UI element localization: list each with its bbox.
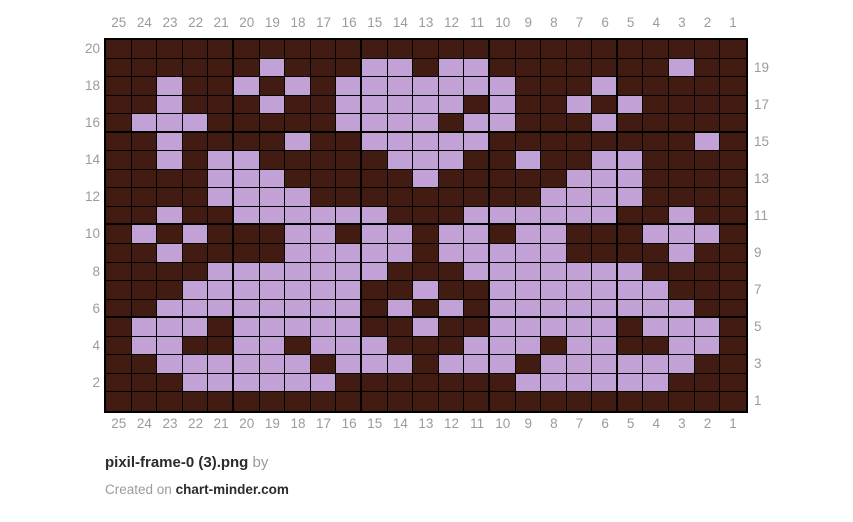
grid-cell[interactable] [208,225,234,244]
grid-cell[interactable] [132,96,158,115]
grid-cell[interactable] [388,355,414,374]
grid-cell[interactable] [464,318,490,337]
grid-cell[interactable] [720,59,746,78]
grid-cell[interactable] [516,96,542,115]
grid-cell[interactable] [388,170,414,189]
grid-cell[interactable] [516,59,542,78]
grid-cell[interactable] [362,151,388,170]
grid-cell[interactable] [618,374,644,393]
grid-cell[interactable] [695,133,721,152]
grid-cell[interactable] [439,225,465,244]
grid-cell[interactable] [720,188,746,207]
grid-cell[interactable] [157,281,183,300]
grid-cell[interactable] [311,281,337,300]
grid-cell[interactable] [439,263,465,282]
grid-cell[interactable] [132,40,158,59]
grid-cell[interactable] [336,188,362,207]
grid-cell[interactable] [183,40,209,59]
grid-cell[interactable] [439,281,465,300]
grid-cell[interactable] [541,300,567,319]
grid-cell[interactable] [362,281,388,300]
grid-cell[interactable] [464,337,490,356]
grid-cell[interactable] [234,225,260,244]
grid-cell[interactable] [643,244,669,263]
grid-cell[interactable] [413,170,439,189]
grid-cell[interactable] [439,133,465,152]
grid-cell[interactable] [260,225,286,244]
grid-cell[interactable] [157,244,183,263]
grid-cell[interactable] [720,225,746,244]
grid-cell[interactable] [106,188,132,207]
grid-cell[interactable] [106,318,132,337]
grid-cell[interactable] [464,263,490,282]
grid-cell[interactable] [336,374,362,393]
grid-cell[interactable] [157,96,183,115]
grid-cell[interactable] [720,318,746,337]
grid-cell[interactable] [618,96,644,115]
grid-cell[interactable] [336,59,362,78]
grid-cell[interactable] [413,77,439,96]
grid-cell[interactable] [234,263,260,282]
grid-cell[interactable] [106,244,132,263]
grid-cell[interactable] [592,96,618,115]
grid-cell[interactable] [362,300,388,319]
grid-cell[interactable] [132,170,158,189]
grid-cell[interactable] [132,318,158,337]
grid-cell[interactable] [720,300,746,319]
grid-cell[interactable] [413,337,439,356]
grid-cell[interactable] [132,133,158,152]
grid-cell[interactable] [285,188,311,207]
grid-cell[interactable] [132,59,158,78]
grid-cell[interactable] [183,337,209,356]
grid-cell[interactable] [695,374,721,393]
grid-cell[interactable] [413,225,439,244]
grid-cell[interactable] [413,263,439,282]
grid-cell[interactable] [567,374,593,393]
grid-cell[interactable] [464,114,490,133]
grid-cell[interactable] [567,281,593,300]
grid-cell[interactable] [388,318,414,337]
grid-cell[interactable] [439,392,465,411]
grid-cell[interactable] [413,355,439,374]
grid-cell[interactable] [260,133,286,152]
grid-cell[interactable] [388,374,414,393]
grid-cell[interactable] [618,337,644,356]
grid-cell[interactable] [208,40,234,59]
grid-cell[interactable] [285,170,311,189]
grid-cell[interactable] [516,188,542,207]
grid-cell[interactable] [157,300,183,319]
grid-cell[interactable] [336,40,362,59]
grid-cell[interactable] [464,281,490,300]
grid-cell[interactable] [464,151,490,170]
grid-cell[interactable] [285,281,311,300]
grid-cell[interactable] [208,244,234,263]
grid-cell[interactable] [669,188,695,207]
grid-cell[interactable] [567,114,593,133]
grid-cell[interactable] [567,244,593,263]
grid-cell[interactable] [260,244,286,263]
grid-cell[interactable] [132,77,158,96]
grid-cell[interactable] [490,188,516,207]
grid-cell[interactable] [208,188,234,207]
grid-cell[interactable] [413,207,439,226]
grid-cell[interactable] [490,281,516,300]
grid-cell[interactable] [208,318,234,337]
grid-cell[interactable] [413,151,439,170]
grid-cell[interactable] [669,392,695,411]
grid-cell[interactable] [208,281,234,300]
grid-cell[interactable] [157,188,183,207]
grid-cell[interactable] [157,170,183,189]
grid-cell[interactable] [567,355,593,374]
grid-cell[interactable] [413,40,439,59]
grid-cell[interactable] [260,300,286,319]
grid-cell[interactable] [285,77,311,96]
grid-cell[interactable] [695,207,721,226]
grid-cell[interactable] [157,151,183,170]
grid-cell[interactable] [157,225,183,244]
grid-cell[interactable] [157,374,183,393]
grid-cell[interactable] [183,59,209,78]
grid-cell[interactable] [439,77,465,96]
grid-cell[interactable] [285,374,311,393]
grid-cell[interactable] [592,244,618,263]
grid-cell[interactable] [132,374,158,393]
grid-cell[interactable] [132,337,158,356]
grid-cell[interactable] [413,59,439,78]
grid-cell[interactable] [311,96,337,115]
grid-cell[interactable] [464,40,490,59]
grid-cell[interactable] [208,170,234,189]
grid-cell[interactable] [592,355,618,374]
grid-cell[interactable] [362,77,388,96]
grid-cell[interactable] [311,318,337,337]
grid-cell[interactable] [362,355,388,374]
grid-cell[interactable] [720,207,746,226]
grid-cell[interactable] [260,77,286,96]
grid-cell[interactable] [388,114,414,133]
grid-cell[interactable] [669,133,695,152]
grid-cell[interactable] [234,374,260,393]
grid-cell[interactable] [132,244,158,263]
grid-cell[interactable] [413,374,439,393]
grid-cell[interactable] [490,244,516,263]
grid-cell[interactable] [157,355,183,374]
grid-cell[interactable] [183,170,209,189]
grid-cell[interactable] [183,392,209,411]
grid-cell[interactable] [388,392,414,411]
grid-cell[interactable] [541,188,567,207]
grid-cell[interactable] [592,188,618,207]
grid-cell[interactable] [720,263,746,282]
grid-cell[interactable] [311,300,337,319]
grid-cell[interactable] [695,151,721,170]
grid-cell[interactable] [106,225,132,244]
grid-cell[interactable] [132,225,158,244]
grid-cell[interactable] [260,355,286,374]
grid-cell[interactable] [618,114,644,133]
grid-cell[interactable] [643,96,669,115]
grid-cell[interactable] [260,207,286,226]
grid-cell[interactable] [285,263,311,282]
grid-cell[interactable] [311,263,337,282]
grid-cell[interactable] [643,77,669,96]
grid-cell[interactable] [208,133,234,152]
grid-cell[interactable] [336,225,362,244]
grid-cell[interactable] [592,300,618,319]
grid-cell[interactable] [618,355,644,374]
grid-cell[interactable] [618,188,644,207]
grid-cell[interactable] [720,374,746,393]
grid-cell[interactable] [643,207,669,226]
grid-cell[interactable] [132,207,158,226]
grid-cell[interactable] [336,114,362,133]
grid-cell[interactable] [516,40,542,59]
grid-cell[interactable] [336,318,362,337]
grid-cell[interactable] [567,170,593,189]
grid-cell[interactable] [720,133,746,152]
grid-cell[interactable] [643,318,669,337]
grid-cell[interactable] [183,281,209,300]
grid-cell[interactable] [720,77,746,96]
grid-cell[interactable] [362,59,388,78]
grid-cell[interactable] [567,59,593,78]
grid-cell[interactable] [388,96,414,115]
grid-cell[interactable] [208,374,234,393]
grid-cell[interactable] [183,96,209,115]
grid-cell[interactable] [439,355,465,374]
grid-cell[interactable] [567,225,593,244]
grid-cell[interactable] [234,337,260,356]
grid-cell[interactable] [669,77,695,96]
grid-cell[interactable] [106,77,132,96]
grid-cell[interactable] [362,244,388,263]
grid-cell[interactable] [336,207,362,226]
grid-cell[interactable] [567,96,593,115]
grid-cell[interactable] [516,374,542,393]
grid-cell[interactable] [413,188,439,207]
grid-cell[interactable] [464,207,490,226]
grid-cell[interactable] [336,263,362,282]
grid-cell[interactable] [464,374,490,393]
grid-cell[interactable] [413,281,439,300]
grid-cell[interactable] [439,300,465,319]
grid-cell[interactable] [541,77,567,96]
grid-cell[interactable] [311,392,337,411]
grid-cell[interactable] [234,133,260,152]
grid-cell[interactable] [157,263,183,282]
grid-cell[interactable] [490,59,516,78]
grid-cell[interactable] [516,337,542,356]
grid-cell[interactable] [132,281,158,300]
grid-cell[interactable] [516,133,542,152]
grid-cell[interactable] [336,281,362,300]
grid-cell[interactable] [234,40,260,59]
grid-cell[interactable] [541,355,567,374]
grid-cell[interactable] [541,59,567,78]
grid-cell[interactable] [157,392,183,411]
grid-cell[interactable] [183,77,209,96]
grid-cell[interactable] [311,225,337,244]
grid-cell[interactable] [439,374,465,393]
grid-cell[interactable] [234,281,260,300]
grid-cell[interactable] [336,300,362,319]
grid-cell[interactable] [362,96,388,115]
grid-cell[interactable] [567,318,593,337]
grid-cell[interactable] [183,151,209,170]
grid-cell[interactable] [208,263,234,282]
grid-cell[interactable] [618,170,644,189]
grid-cell[interactable] [106,207,132,226]
grid-cell[interactable] [336,77,362,96]
grid-cell[interactable] [157,207,183,226]
grid-cell[interactable] [695,355,721,374]
grid-cell[interactable] [592,318,618,337]
grid-cell[interactable] [285,207,311,226]
grid-cell[interactable] [490,77,516,96]
grid-cell[interactable] [106,151,132,170]
grid-cell[interactable] [234,59,260,78]
grid-cell[interactable] [567,392,593,411]
grid-cell[interactable] [388,40,414,59]
grid-cell[interactable] [618,263,644,282]
grid-cell[interactable] [643,263,669,282]
grid-cell[interactable] [362,374,388,393]
grid-cell[interactable] [669,114,695,133]
grid-cell[interactable] [388,77,414,96]
grid-cell[interactable] [669,96,695,115]
grid-cell[interactable] [260,374,286,393]
grid-cell[interactable] [234,96,260,115]
grid-cell[interactable] [618,207,644,226]
grid-cell[interactable] [618,318,644,337]
grid-cell[interactable] [157,337,183,356]
grid-cell[interactable] [720,244,746,263]
grid-cell[interactable] [464,392,490,411]
grid-cell[interactable] [695,40,721,59]
grid-cell[interactable] [208,59,234,78]
grid-cell[interactable] [388,133,414,152]
grid-cell[interactable] [132,392,158,411]
grid-cell[interactable] [106,59,132,78]
grid-cell[interactable] [311,133,337,152]
grid-cell[interactable] [516,244,542,263]
grid-cell[interactable] [592,207,618,226]
grid-cell[interactable] [618,225,644,244]
grid-cell[interactable] [439,59,465,78]
grid-cell[interactable] [643,188,669,207]
grid-cell[interactable] [336,355,362,374]
grid-cell[interactable] [311,151,337,170]
grid-cell[interactable] [362,133,388,152]
grid-cell[interactable] [234,392,260,411]
grid-cell[interactable] [592,281,618,300]
grid-cell[interactable] [567,337,593,356]
grid-cell[interactable] [234,77,260,96]
grid-cell[interactable] [643,225,669,244]
grid-cell[interactable] [720,114,746,133]
grid-cell[interactable] [285,96,311,115]
grid-cell[interactable] [183,244,209,263]
grid-cell[interactable] [234,114,260,133]
grid-cell[interactable] [567,263,593,282]
grid-cell[interactable] [208,151,234,170]
grid-cell[interactable] [183,225,209,244]
grid-cell[interactable] [567,300,593,319]
grid-cell[interactable] [695,263,721,282]
grid-cell[interactable] [234,170,260,189]
grid-cell[interactable] [643,281,669,300]
grid-cell[interactable] [490,133,516,152]
grid-cell[interactable] [157,77,183,96]
grid-cell[interactable] [388,59,414,78]
grid-cell[interactable] [439,40,465,59]
grid-cell[interactable] [618,77,644,96]
grid-cell[interactable] [183,355,209,374]
grid-cell[interactable] [567,133,593,152]
grid-cell[interactable] [388,151,414,170]
site-link[interactable]: chart-minder.com [176,482,289,497]
grid-cell[interactable] [260,96,286,115]
grid-cell[interactable] [132,151,158,170]
grid-cell[interactable] [132,188,158,207]
grid-cell[interactable] [413,318,439,337]
grid-cell[interactable] [490,355,516,374]
grid-cell[interactable] [669,374,695,393]
grid-cell[interactable] [669,281,695,300]
grid-cell[interactable] [516,207,542,226]
grid-cell[interactable] [311,355,337,374]
grid-cell[interactable] [643,374,669,393]
grid-cell[interactable] [132,300,158,319]
grid-cell[interactable] [643,337,669,356]
grid-cell[interactable] [183,114,209,133]
grid-cell[interactable] [643,355,669,374]
grid-cell[interactable] [285,40,311,59]
grid-cell[interactable] [106,337,132,356]
grid-cell[interactable] [516,170,542,189]
grid-cell[interactable] [285,300,311,319]
grid-cell[interactable] [643,151,669,170]
grid-cell[interactable] [669,40,695,59]
grid-cell[interactable] [695,170,721,189]
grid-cell[interactable] [388,225,414,244]
grid-cell[interactable] [592,225,618,244]
grid-cell[interactable] [464,170,490,189]
grid-cell[interactable] [311,374,337,393]
grid-cell[interactable] [311,337,337,356]
grid-cell[interactable] [669,337,695,356]
grid-cell[interactable] [643,133,669,152]
grid-cell[interactable] [311,207,337,226]
grid-cell[interactable] [132,114,158,133]
grid-cell[interactable] [106,355,132,374]
grid-cell[interactable] [183,188,209,207]
grid-cell[interactable] [695,59,721,78]
grid-cell[interactable] [695,114,721,133]
grid-cell[interactable] [439,244,465,263]
grid-cell[interactable] [720,355,746,374]
grid-cell[interactable] [516,225,542,244]
grid-cell[interactable] [208,96,234,115]
grid-cell[interactable] [106,133,132,152]
grid-cell[interactable] [695,96,721,115]
grid-cell[interactable] [464,300,490,319]
grid-cell[interactable] [311,244,337,263]
grid-cell[interactable] [388,300,414,319]
